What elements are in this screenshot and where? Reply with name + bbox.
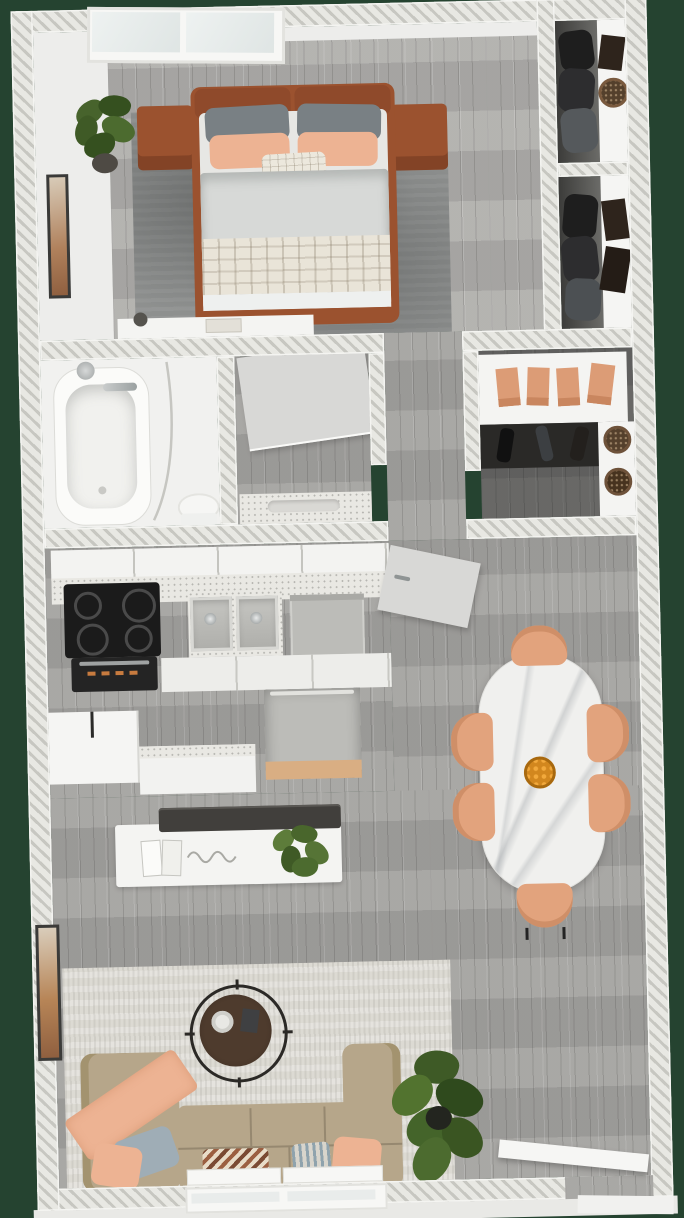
window-pane-right <box>186 12 274 52</box>
island-decor-squiggle <box>185 844 237 867</box>
closet-lower-clothes <box>561 192 604 321</box>
open-appliance <box>264 688 362 780</box>
vanity-counter <box>239 491 372 524</box>
closet-top-clothes <box>557 28 600 153</box>
window-pane-left <box>92 12 180 52</box>
living-wall-art <box>35 924 62 1061</box>
island-plant <box>269 822 332 883</box>
kitchen-base-cabinets <box>161 653 392 692</box>
tub-faucet <box>103 383 137 392</box>
wall-closet-divider <box>558 161 628 177</box>
double-bed <box>190 83 399 328</box>
oven <box>71 656 158 692</box>
nightstand-left <box>137 105 194 170</box>
console-books <box>205 318 241 333</box>
entry-stoop <box>578 1195 674 1214</box>
coffee-table-book <box>240 1008 260 1033</box>
apartment-plan <box>10 0 673 1211</box>
kitchen-counter-extension <box>139 744 256 795</box>
living-window <box>185 1183 388 1214</box>
plaid-blanket <box>202 235 391 297</box>
appliance-wood-tray <box>266 760 362 780</box>
wall-midband-south-right <box>466 515 636 539</box>
living-window-sill-inner-right <box>283 1165 383 1183</box>
island-books <box>141 838 184 877</box>
bedroom-window <box>87 7 285 64</box>
bedroom-wall-art <box>46 174 71 298</box>
bedroom-plant <box>70 95 138 176</box>
wall-bathroom-right <box>216 356 238 524</box>
toilet <box>177 493 220 526</box>
kitchen-cabinet-box <box>48 711 140 785</box>
cooktop <box>63 582 161 658</box>
floorplan-scene <box>0 0 684 1218</box>
walkin-box-3 <box>556 367 580 406</box>
wall-vanity-right <box>368 353 387 465</box>
plant-pot <box>92 153 118 174</box>
dishwasher <box>290 594 365 658</box>
sofa-pillow-peach-1 <box>90 1142 144 1191</box>
vanity-sink <box>268 499 340 513</box>
closet-lower-box-upper <box>601 198 630 241</box>
walkin-hanging-clothes <box>480 422 611 469</box>
living-floor-plant <box>386 1049 495 1183</box>
walkin-box-1 <box>495 367 520 407</box>
wall-walkin-left <box>462 351 481 471</box>
wall-bedroom-south-right <box>462 327 632 351</box>
walkin-box-2 <box>527 367 550 406</box>
closet-top-box <box>598 34 626 71</box>
walkin-box-4 <box>587 363 616 406</box>
door-handle <box>394 574 410 581</box>
living-window-sill-inner-left <box>187 1168 281 1186</box>
coffee-table-bowl <box>211 1011 233 1033</box>
vanity-open-door <box>236 340 376 451</box>
nightstand-right <box>391 103 448 170</box>
shower-curtain-rod <box>136 360 176 523</box>
console-vase <box>133 312 147 326</box>
sink-unit <box>188 589 283 657</box>
hallway-floor <box>384 331 467 541</box>
